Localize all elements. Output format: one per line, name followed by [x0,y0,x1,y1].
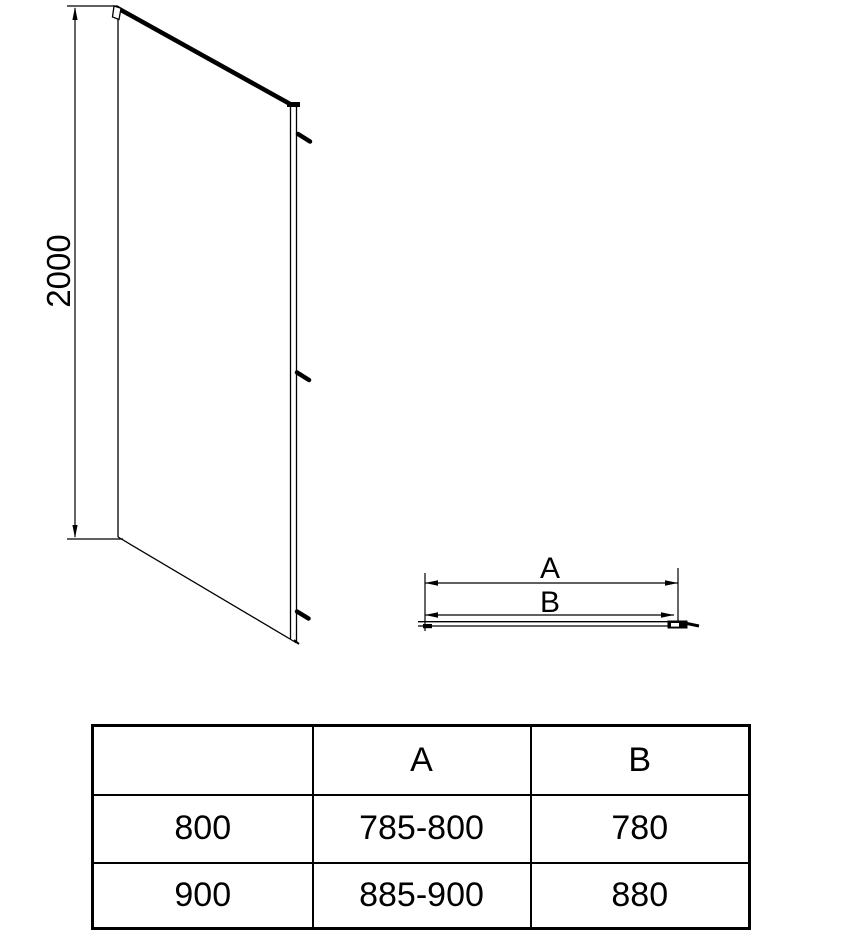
cell-b-800: 780 [531,795,750,863]
cell-a-900: 885-900 [313,863,531,929]
plan-wall-profile-tail [687,624,699,627]
arrowhead-up-icon [72,7,77,20]
dimension-b: B [425,586,674,619]
wall-profile-top-cap [287,102,300,107]
cell-size-800: 800 [93,795,313,863]
size-table: A B 800 785-800 780 900 885-900 880 [91,724,751,930]
corner-bracket [113,6,122,20]
wall-bracket-pins [297,134,310,619]
wall-bracket-pin-bottom [297,612,309,619]
top-support-bar [117,8,292,105]
arrowhead-right-icon [665,580,678,585]
size-table-header-a: A [313,726,531,795]
shower-panel-drawing: 2000 [0,0,846,700]
plan-glass-edges [418,622,668,626]
arrowhead-down-icon [72,525,77,538]
arrowhead-right-icon [661,612,674,617]
height-dimension-label: 2000 [40,234,77,307]
cell-b-900: 880 [531,863,750,929]
dimension-a-label: A [540,552,560,585]
technical-drawing-page: 2000 [0,0,846,938]
glass-panel-outline [118,6,290,639]
dimension-a: A [425,552,678,586]
size-table-header-b: B [531,726,750,795]
table-row-800: 800 785-800 780 [93,795,750,863]
plan-left-end-cap [423,624,432,628]
wall-bracket-pin-top [298,134,310,142]
size-table-header-row: A B [93,726,750,795]
panel-bottom-edge [118,537,290,639]
plan-glass-panel [418,621,699,629]
height-dimension: 2000 [40,6,123,539]
wall-bracket-pin-middle [297,373,309,381]
cell-a-800: 785-800 [313,795,531,863]
top-view: A B [418,552,699,631]
dimension-b-label: B [540,586,560,619]
arrowhead-left-icon [425,580,438,585]
plan-wall-profile-slot [671,623,679,627]
arrowhead-left-icon [425,612,438,617]
table-row-900: 900 885-900 880 [93,863,750,929]
cell-size-900: 900 [93,863,313,929]
size-table-header-blank [93,726,313,795]
side-view: 2000 [40,6,310,644]
